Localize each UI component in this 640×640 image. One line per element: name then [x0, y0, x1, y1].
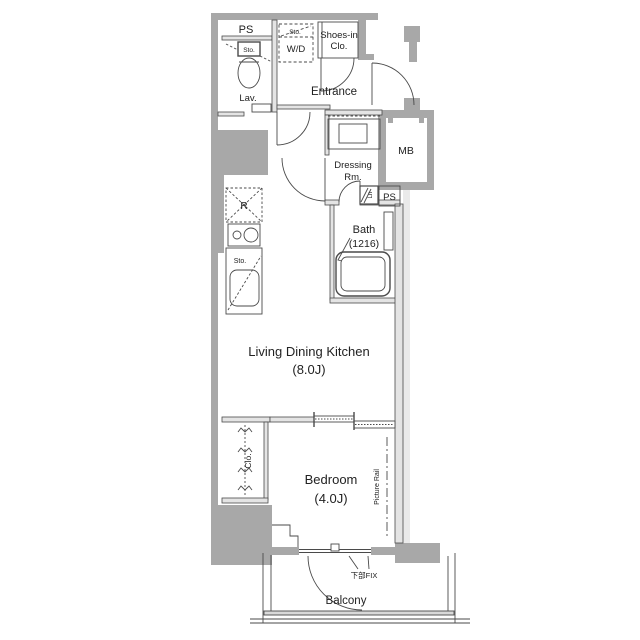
dressing-label-1: Dressing [334, 160, 372, 171]
stove-burner-small [233, 231, 241, 239]
wall-left-block [211, 130, 268, 175]
wall-ldk-bedroom [270, 417, 314, 422]
wall-bath-bottom [330, 298, 400, 303]
floor-plan-svg: PS Sto. Lav. Sto. W/D Shoes-in Clo. Entr… [0, 0, 640, 640]
wall-lav-right [272, 20, 277, 112]
bathtub-inner [341, 257, 385, 291]
linen-label: Ln [368, 192, 374, 199]
bath-label: Bath [353, 224, 376, 236]
wall-left-mid [211, 175, 224, 253]
vanity [328, 116, 380, 149]
wall-dressing-top [325, 110, 382, 115]
mb-notch-right [419, 118, 424, 123]
bedroom-label: Bedroom [305, 472, 358, 487]
wall-right-tall [395, 204, 403, 543]
wd-storage-label: Sto. [289, 29, 301, 36]
toilet-storage-dash1 [226, 44, 238, 50]
wall-bedroom-bottom-left [272, 547, 299, 555]
ps-top-label: PS [239, 24, 254, 36]
toilet-storage-label: Sto. [243, 47, 255, 54]
window-handle [331, 544, 339, 551]
shoes-closet-label-2: Clo. [331, 41, 348, 52]
closet-label: Clo. [243, 453, 253, 468]
mb-wall-top [378, 110, 434, 118]
wall-right-of-shoes [358, 13, 366, 58]
right-facade-band [403, 190, 410, 543]
ldk-label: Living Dining Kitchen [248, 344, 369, 359]
mb-wall-left [378, 110, 386, 190]
mb-notch-left [388, 118, 393, 123]
bath-shelf [384, 212, 393, 250]
dressing-door-arc [282, 158, 325, 201]
pillar-entry-top [404, 26, 420, 42]
toilet-bowl [238, 58, 260, 88]
ps-mid-label: PS [383, 192, 396, 203]
floor-plan: PS Sto. Lav. Sto. W/D Shoes-in Clo. Entr… [0, 0, 640, 640]
wall-entry-outer [409, 40, 417, 62]
fix-leader-1 [349, 556, 358, 569]
picture-rail-label: Picture Rail [374, 469, 381, 505]
toilet-storage-dash2 [260, 56, 272, 62]
wall-ps-lav-divider [222, 36, 272, 40]
fix-window-label: 下部FIX [351, 570, 378, 580]
fix-leader-2 [368, 556, 369, 569]
wall-bottom-right-block [395, 543, 440, 563]
wall-left-lower [211, 253, 218, 505]
vanity-counter [328, 119, 380, 149]
wall-entry-sill [358, 54, 374, 60]
wall-left-upper [211, 13, 218, 130]
wd-label: W/D [287, 44, 306, 55]
wall-bath-left [330, 205, 334, 300]
lavatory-shelf [252, 104, 271, 112]
kitchen-storage-label: Sto. [234, 258, 247, 265]
pillar-entry-bottom [404, 98, 420, 112]
wall-entrance-bottom [277, 105, 330, 109]
bedroom-size-label: (4.0J) [314, 491, 347, 506]
balcony-label: Balcony [326, 595, 367, 607]
bedroom-floor-step [272, 525, 298, 547]
lavatory-door-arc [277, 112, 310, 145]
wall-closet-bottom [222, 498, 268, 503]
wall-top [211, 13, 378, 20]
bath-door-arc [339, 181, 360, 202]
stove-burner-large [244, 228, 258, 242]
wall-lav-bottom [218, 112, 244, 116]
mb-label: MB [398, 145, 414, 157]
kitchen-sink [230, 270, 259, 306]
door-arcs [277, 58, 414, 610]
vanity-basin [339, 124, 367, 143]
balcony-floor-edge [264, 611, 454, 615]
balcony-structure [250, 553, 470, 623]
lavatory-label: Lav. [239, 93, 256, 104]
sliding-partition [314, 412, 395, 430]
dressing-label-2: Rm. [344, 172, 361, 183]
wall-bedroom-bottom-right [371, 547, 395, 555]
ldk-size-label: (8.0J) [292, 362, 325, 377]
wall-closet-top [222, 417, 270, 422]
fridge-label: R [240, 201, 247, 212]
wall-closet-right [264, 422, 268, 500]
balcony-window [299, 544, 371, 569]
wall-dressing-bottom [325, 200, 339, 205]
mb-wall-right [427, 110, 434, 190]
shoes-closet-label-1: Shoes-in [320, 30, 358, 41]
bathtub-outer [336, 252, 390, 296]
bath-size-label: (1216) [349, 238, 379, 250]
entrance-label: Entrance [311, 86, 357, 98]
